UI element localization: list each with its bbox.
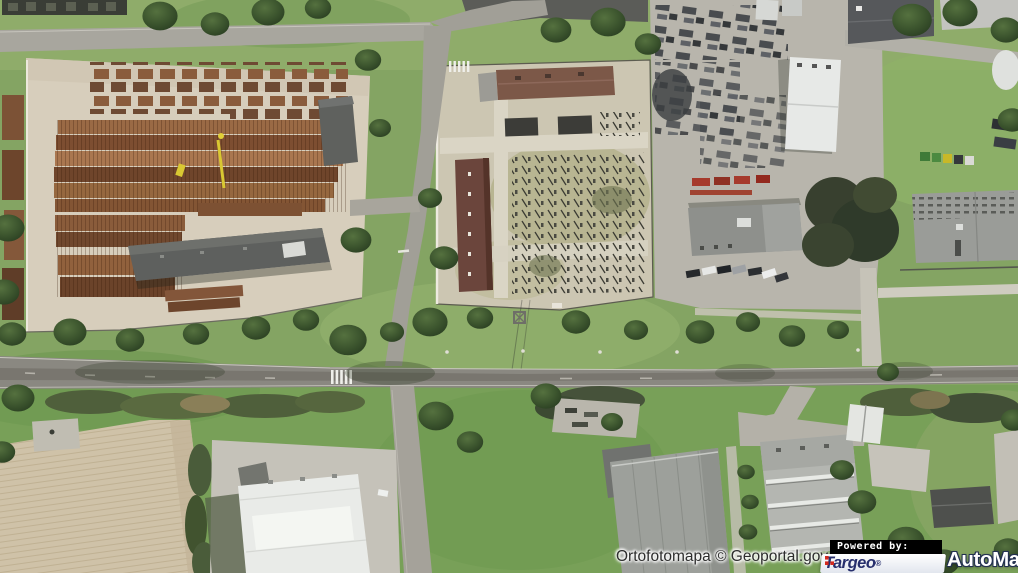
targeo-mark-icon [825,556,835,566]
map-attribution: Ortofotomapa © Geoportal.gov.pl [616,548,843,566]
map-viewport: Ortofotomapa © Geoportal.gov.pl Powered … [0,0,1018,573]
tree-shadow-mass [802,177,899,267]
white-shed [846,404,884,444]
aerial-orthophoto [0,0,1018,573]
powered-by-badge: Powered by: [830,540,942,554]
white-hall [778,57,841,154]
warehouse-se-east [760,434,864,556]
junk-pad [552,398,640,438]
plowed-field [0,420,208,573]
garage-se [930,486,994,528]
substation-gate [552,303,562,308]
automapa-logo[interactable]: AutoMapa® [947,548,1018,572]
automapa-logo-text: AutoMapa [947,548,1018,571]
panel-roof-building [900,190,1018,270]
substation-annex [478,72,498,102]
targeo-logo[interactable]: Targeo® [820,554,946,573]
targeo-reg-mark: ® [875,559,881,568]
lumber-yard [2,58,370,332]
powered-by-label: Powered by: [837,541,909,552]
depot-west [205,440,400,573]
utility-pad [32,418,80,451]
substation-brick-building [455,158,493,292]
